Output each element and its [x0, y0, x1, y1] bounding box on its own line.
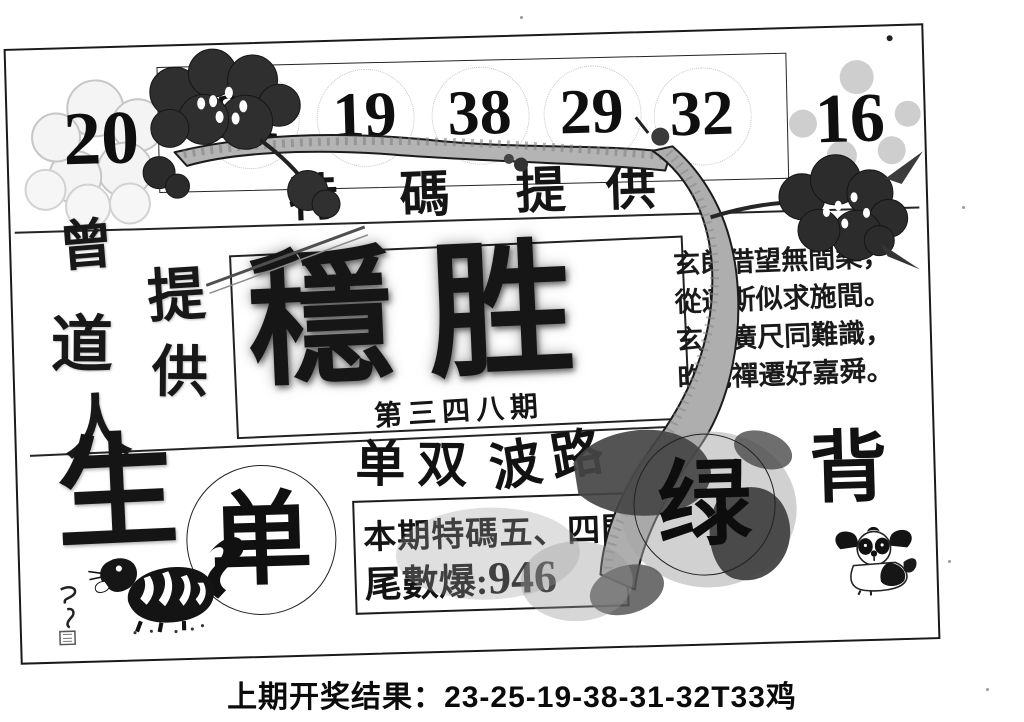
scan-speck [986, 688, 989, 691]
tail-number-line: 尾數爆:946 [364, 549, 558, 609]
number-32: 32 [669, 81, 735, 147]
ink-speck [887, 35, 893, 41]
label-char: 特 [287, 172, 339, 224]
tiger-icon [87, 528, 254, 637]
green-pick-char: 绿 [656, 456, 753, 553]
result-label: 上期开奖结果： [227, 681, 444, 714]
special-tip-box: 本期特碼五、四門, 尾數爆:946 [352, 492, 629, 615]
number-20: 20 [62, 99, 140, 177]
tail-label: 尾數爆: [364, 562, 489, 607]
sheet-title: 穩胜 [245, 235, 611, 397]
odd-even-label: 单双 [355, 439, 479, 490]
dog-icon [827, 524, 921, 599]
number-21: 21 [215, 83, 281, 149]
scan-speck [962, 206, 965, 209]
label-char: 提 [515, 165, 567, 217]
artist-signature-seal [55, 583, 89, 648]
title-box: 穩胜 第三四八期 [229, 236, 691, 440]
scanned-lottery-tip-sheet: { "page": { "footer_label": "上期开奖结果：", "… [0, 0, 1024, 722]
number-19: 19 [332, 82, 398, 148]
scan-speck [520, 16, 523, 19]
tip-sheet: 20 21 19 38 29 32 16 特 碼 提 供 曾 道 人 提 供 生… [4, 23, 941, 664]
number-29: 29 [559, 79, 625, 145]
brand-char-dao: 道 [51, 315, 113, 377]
tip-poem: 玄郎借望無間樂， 從遭斯似求施間。 玄州廣尺同難識， 昨說禪遷好嘉舜。 [673, 236, 931, 398]
label-char: 供 [605, 162, 657, 214]
brand-char-zeng: 曾 [57, 217, 115, 275]
back-zodiac-char: 背 [809, 427, 889, 507]
provide-char-ti: 提 [146, 265, 208, 327]
green-pick-circle: 绿 [632, 432, 778, 578]
label-char: 碼 [399, 169, 451, 221]
scan-speck [948, 560, 951, 563]
provide-char-gong: 供 [152, 345, 208, 401]
result-value: 23-25-19-38-31-32T33鸡 [444, 681, 797, 714]
number-38: 38 [447, 80, 513, 146]
tail-value: 946 [487, 551, 558, 604]
number-16: 16 [814, 83, 886, 155]
previous-draw-result: 上期开奖结果：23-25-19-38-31-32T33鸡 [0, 672, 1024, 716]
